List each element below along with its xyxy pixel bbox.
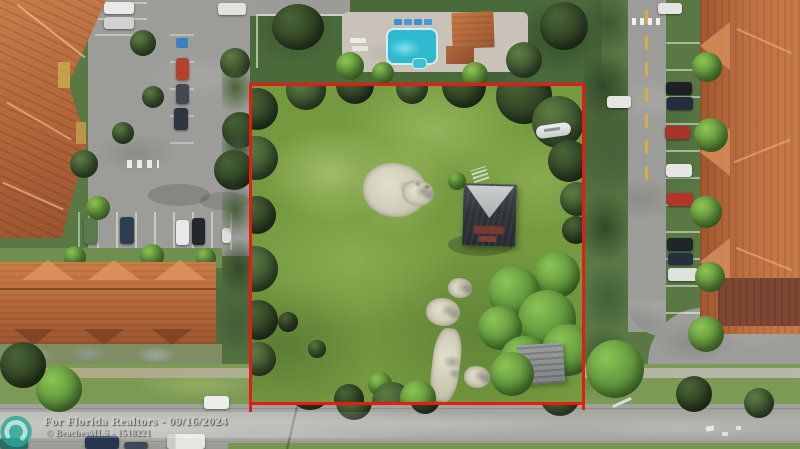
tree-line	[222, 58, 252, 350]
townhome-roof-bottom-left	[0, 262, 216, 344]
clubhouse-roof	[451, 11, 494, 48]
lounge-chair	[352, 46, 368, 51]
palm-tree	[690, 196, 722, 228]
tree	[676, 376, 712, 412]
palm-tree	[336, 52, 364, 80]
car	[607, 96, 631, 108]
car	[667, 97, 693, 110]
roof-ridge-line	[0, 288, 216, 290]
roof-gable	[22, 260, 74, 280]
road-edge-line	[0, 408, 800, 409]
crosswalk-marking	[127, 160, 159, 168]
roof-ridge-highlight	[736, 247, 792, 271]
building-wall	[76, 122, 86, 144]
tree	[744, 388, 774, 418]
debris	[722, 432, 728, 436]
tree	[142, 86, 164, 108]
tree	[130, 30, 156, 56]
car	[667, 238, 693, 251]
tree	[586, 340, 644, 398]
roof-gable	[88, 260, 140, 280]
roof-ridge-highlight	[734, 139, 790, 163]
lounge-chair	[394, 19, 402, 25]
car	[192, 218, 205, 245]
roof-gable	[154, 260, 206, 280]
road-edge-line	[0, 441, 800, 442]
lounge-chair	[404, 19, 412, 25]
tree	[112, 122, 134, 144]
fence-wall	[256, 14, 258, 68]
car	[218, 3, 246, 15]
watermark-line1: For Florida Realtors - 09/16/2024	[44, 414, 228, 429]
lounge-chair	[414, 19, 422, 25]
handicap-space-marking	[176, 38, 188, 48]
property-boundary	[249, 83, 585, 405]
roof-gable	[84, 329, 124, 345]
palm-tree	[86, 196, 110, 220]
lounge-chair	[350, 38, 366, 43]
roof-gable	[152, 329, 192, 345]
tree	[70, 150, 98, 178]
roof-dark-east	[718, 278, 800, 326]
spa-tub	[412, 58, 427, 69]
watermark-line2: © BeachesMLS - 1518221	[46, 428, 151, 438]
palm-tree	[692, 52, 722, 82]
car	[174, 108, 188, 130]
roof-ridge-highlight	[736, 28, 792, 54]
car	[658, 3, 682, 14]
palm-tree	[695, 262, 725, 292]
car	[176, 58, 189, 80]
tree	[506, 42, 542, 78]
car	[176, 84, 189, 104]
tree-line-east	[584, 0, 630, 392]
tree	[540, 2, 588, 50]
car	[666, 82, 692, 95]
palm-tree	[694, 118, 728, 152]
grass-verge-south	[228, 443, 800, 449]
building-wall	[58, 62, 70, 88]
palm-tree	[372, 62, 394, 84]
debris	[736, 426, 741, 430]
road-center-line	[645, 8, 648, 180]
car	[666, 164, 692, 177]
car	[176, 220, 189, 245]
car	[665, 126, 690, 139]
beachesmls-logo-icon	[0, 414, 37, 449]
clubhouse-roof	[446, 46, 474, 64]
tree	[272, 4, 324, 50]
lounge-chair	[424, 19, 432, 25]
car	[120, 217, 134, 244]
tree	[0, 342, 46, 388]
car	[124, 442, 148, 449]
van	[668, 268, 698, 281]
car	[104, 2, 134, 14]
car	[667, 193, 693, 206]
car	[668, 253, 693, 265]
crosswalk-marking	[632, 18, 662, 25]
car	[104, 17, 134, 29]
aerial-photo: For Florida Realtors - 09/16/2024 © Beac…	[0, 0, 800, 449]
car	[84, 218, 98, 244]
palm-tree	[688, 316, 724, 352]
car	[204, 396, 229, 409]
